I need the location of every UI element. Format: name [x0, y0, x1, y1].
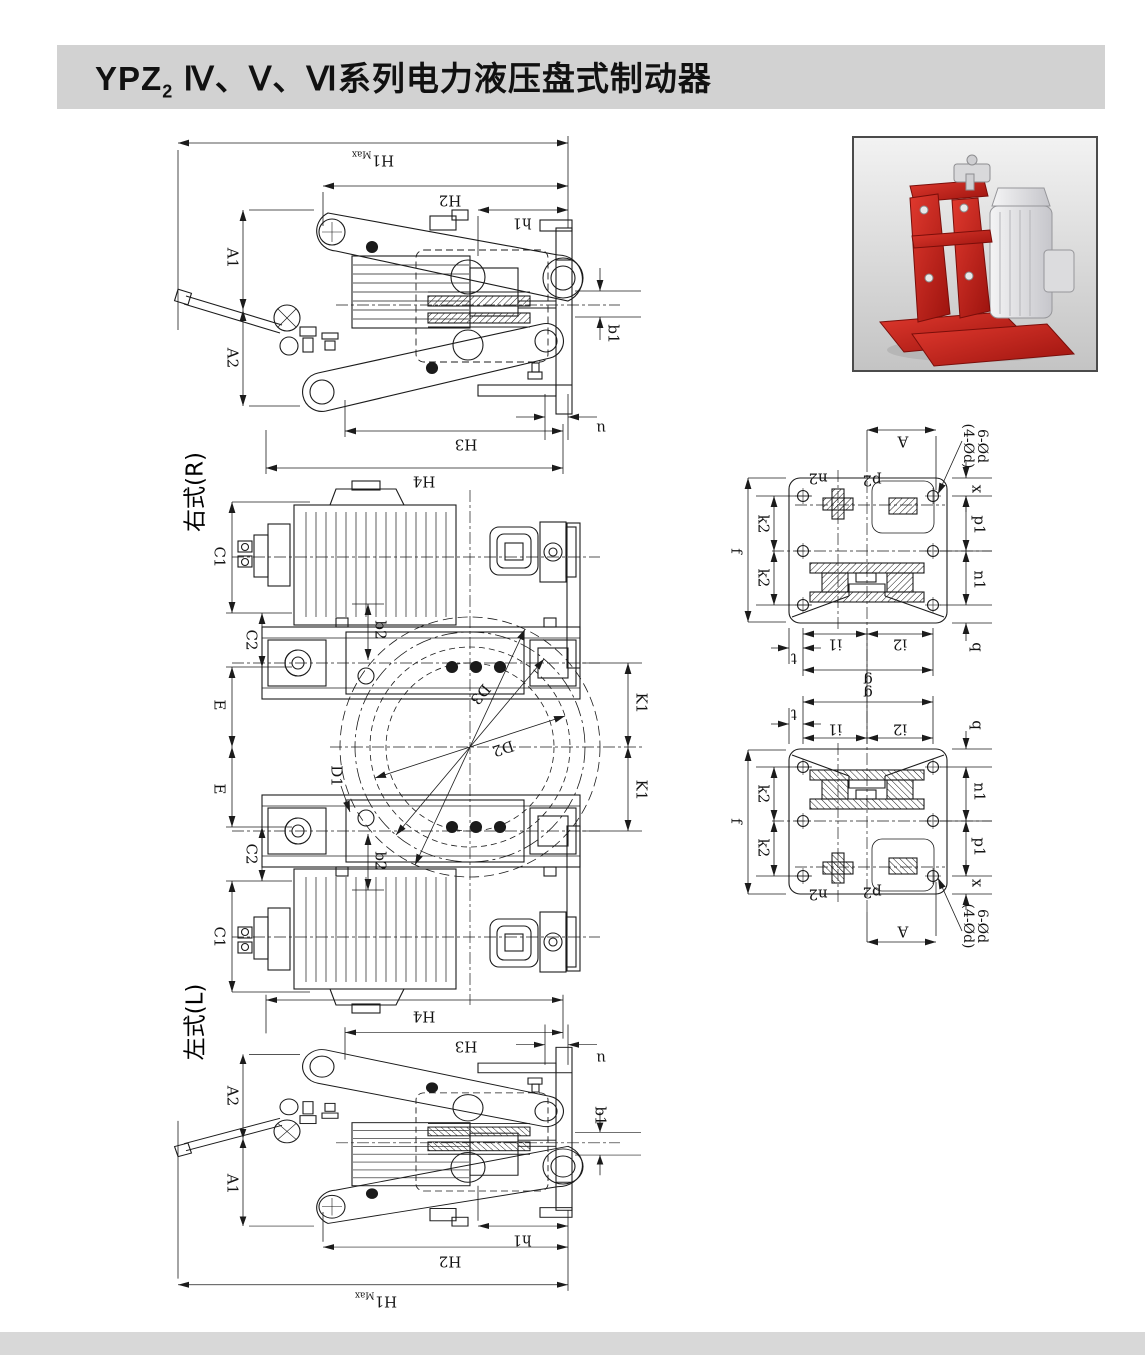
plate-label-n2-top: n2: [808, 471, 827, 486]
plate-label-q-bottom: q: [970, 720, 985, 730]
drawing-side-view-left: [175, 995, 641, 1291]
dim-label-h1max: H1Max: [352, 149, 394, 168]
dim-label-b1-bottom: b1: [593, 1106, 608, 1125]
view-label-left: 左式(L): [185, 984, 208, 1061]
product-photo: [852, 136, 1098, 372]
dim-label-b2-lower: b2: [373, 851, 388, 870]
plate-label-i2-top: i2: [893, 637, 907, 652]
plate-label-p1-bottom: p1: [972, 837, 987, 856]
plate-label-g-bottom: g: [863, 686, 873, 701]
dim-label-h2-bottom: H2: [439, 1254, 462, 1269]
dim-label-c1-upper: C1: [212, 546, 227, 567]
plate-label-p2-bottom: p2: [862, 885, 881, 900]
plate-label-i1-top: i1: [828, 637, 842, 652]
drawing-mounting-plate-bottom: [748, 682, 992, 942]
dim-label-a1-bottom: A1: [225, 1174, 240, 1194]
plate-label-x-top: x: [970, 485, 985, 493]
drawing-brake-disc: [330, 490, 644, 1005]
plate-label-f-bottom: f: [729, 818, 744, 824]
plate-label-n1-bottom: n1: [972, 782, 987, 801]
dim-label-h1max-bottom: H1Max: [355, 1290, 397, 1309]
dim-label-a1: A1: [225, 248, 240, 268]
dim-label-d1: D1: [329, 765, 344, 787]
dim-label-c2-lower: C2: [244, 843, 259, 864]
dim-label-b1: b1: [606, 324, 621, 343]
plate-label-p1-top: p1: [972, 515, 987, 534]
plate-label-x-bottom: x: [970, 879, 985, 887]
dim-label-u: u: [596, 421, 606, 436]
plate-label-q-top: q: [970, 642, 985, 652]
plate-label-k2a-bottom: k2: [756, 785, 771, 804]
plate-label-p2-top: p2: [862, 473, 881, 488]
plate-label-holes-bottom: 6-Ød(4-Ød): [961, 903, 989, 948]
drawing-mounting-plate-top: [748, 430, 992, 690]
plate-label-holes-top: 6-Ød(4-Ød): [961, 423, 989, 468]
plate-label-k2b-top: k2: [756, 569, 771, 588]
dim-label-b2-upper: b2: [373, 620, 388, 639]
dim-label-u-bottom: u: [596, 1051, 606, 1066]
plate-label-t-top: t: [791, 651, 797, 666]
dim-label-a2: A2: [225, 348, 240, 368]
plate-label-a-top: A: [898, 434, 909, 449]
plate-label-n1-top: n1: [972, 570, 987, 589]
dim-label-c2-upper: C2: [244, 629, 259, 650]
dim-label-h1-small-bottom: h1: [512, 1233, 531, 1248]
dim-label-e-lower: E: [212, 784, 227, 795]
plate-label-k2a-top: k2: [756, 515, 771, 534]
dim-label-c1-lower: C1: [212, 926, 227, 947]
dim-label-a2-bottom: A2: [225, 1086, 240, 1106]
plate-label-a-bottom: A: [898, 924, 909, 939]
plate-label-n2-bottom: n2: [808, 887, 827, 902]
dim-label-h4-bottom: H4: [413, 1009, 436, 1024]
plate-label-t-bottom: t: [791, 707, 797, 722]
dim-label-h2: H2: [439, 193, 462, 208]
photo-brake-image: [854, 138, 1096, 370]
dim-label-h1-small: h1: [512, 216, 531, 231]
view-label-right: 右式(R): [185, 452, 208, 532]
plate-label-i1-bottom: i1: [828, 722, 842, 737]
dim-label-k1-upper: K1: [634, 693, 649, 714]
dim-label-e-upper: E: [212, 700, 227, 711]
dim-label-h4: H4: [413, 474, 436, 489]
catalog-page: { "title": { "brand": "YPZ", "sub": "2",…: [0, 0, 1145, 1355]
page-bottom-strip: [0, 1332, 1145, 1355]
dim-label-k1-lower: K1: [634, 780, 649, 801]
drawing-side-view-right: [175, 136, 641, 474]
plate-label-i2-bottom: i2: [893, 722, 907, 737]
dim-label-h3: H3: [455, 437, 478, 452]
plate-label-k2b-bottom: k2: [756, 839, 771, 858]
dim-label-h3-bottom: H3: [455, 1039, 478, 1054]
plate-label-f-top: f: [729, 548, 744, 554]
